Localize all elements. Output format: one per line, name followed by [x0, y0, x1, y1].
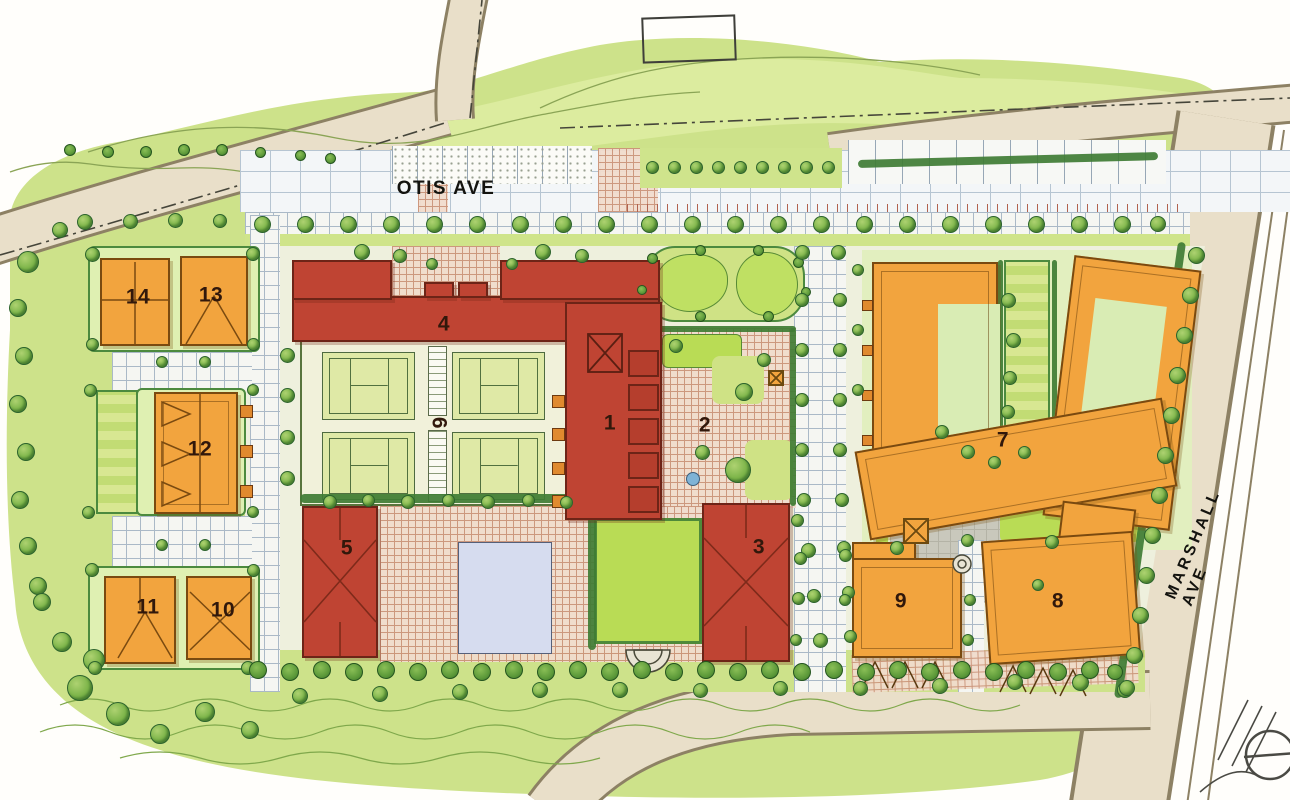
tree-icon	[935, 425, 949, 439]
tree-icon	[985, 216, 1002, 233]
balcony	[552, 428, 565, 441]
bush-icon	[761, 661, 779, 679]
tree-icon	[150, 724, 170, 744]
tree-icon	[77, 214, 93, 230]
tennis-court-3	[322, 432, 415, 500]
garden-lobe-east	[736, 252, 798, 316]
tree-icon	[86, 338, 99, 351]
tree-icon	[1182, 287, 1199, 304]
building-14-label: 14	[126, 287, 150, 308]
tree-icon	[247, 384, 259, 396]
tree-icon	[1001, 405, 1015, 419]
tree-icon	[393, 249, 407, 263]
tree-icon	[795, 343, 809, 357]
tree-icon	[669, 339, 683, 353]
building-10-label: 10	[211, 600, 235, 621]
spa-pool	[686, 472, 700, 486]
tree-icon	[813, 633, 828, 648]
tree-icon	[695, 445, 710, 460]
tree-icon	[641, 216, 658, 233]
tree-icon	[383, 216, 400, 233]
tree-icon	[734, 161, 747, 174]
tree-icon	[1126, 647, 1143, 664]
tree-icon	[247, 506, 259, 518]
tennis-court-1	[322, 352, 415, 420]
tree-icon	[833, 393, 847, 407]
tree-icon	[964, 594, 976, 606]
tree-icon	[85, 247, 100, 262]
bush-icon	[1107, 664, 1123, 680]
bush-icon	[345, 663, 363, 681]
legend-box	[641, 14, 737, 63]
bush-icon	[178, 144, 190, 156]
tree-icon	[1188, 247, 1205, 264]
balcony	[862, 300, 873, 311]
building-4-label: 4	[438, 314, 450, 335]
tree-icon	[9, 395, 27, 413]
garden-rows	[96, 390, 138, 514]
tree-icon	[693, 683, 708, 698]
tree-icon	[442, 494, 455, 507]
tree-icon	[684, 216, 701, 233]
bush-icon	[377, 661, 395, 679]
tree-icon	[853, 681, 868, 696]
tennis-court-4	[452, 432, 545, 500]
bush-icon	[665, 663, 683, 681]
bush-icon	[753, 245, 764, 256]
tree-icon	[247, 564, 260, 577]
unit-box	[628, 452, 659, 479]
tree-icon	[932, 678, 948, 694]
unit-box	[628, 418, 659, 445]
tree-icon	[19, 537, 37, 555]
bush-icon	[695, 311, 706, 322]
building-8-label: 8	[1052, 591, 1064, 612]
tree-icon	[506, 258, 518, 270]
tree-icon	[340, 216, 357, 233]
tennis-court-2	[452, 352, 545, 420]
tree-icon	[770, 216, 787, 233]
tree-icon	[1132, 607, 1149, 624]
tree-icon	[1071, 216, 1088, 233]
tree-icon	[1028, 216, 1045, 233]
tree-icon	[241, 721, 259, 739]
building-1-label: 1	[604, 413, 616, 434]
tree-icon	[560, 496, 573, 509]
bush-icon	[793, 663, 811, 681]
tree-icon	[452, 684, 468, 700]
bush-icon	[857, 663, 875, 681]
tree-icon	[362, 494, 375, 507]
tree-icon	[1151, 487, 1168, 504]
tree-icon	[852, 324, 864, 336]
bush-icon	[647, 253, 658, 264]
tree-icon	[52, 632, 72, 652]
tree-icon	[280, 348, 295, 363]
tree-icon	[469, 216, 486, 233]
tree-icon	[535, 244, 551, 260]
tree-icon	[1157, 447, 1174, 464]
tree-icon	[168, 213, 183, 228]
tree-icon	[106, 702, 130, 726]
hedge	[656, 326, 796, 332]
tree-icon	[778, 161, 791, 174]
bush-icon	[1017, 661, 1035, 679]
hedge	[790, 328, 796, 506]
building-5-label: 5	[341, 538, 353, 559]
swimming-pool	[458, 542, 552, 654]
tree-icon	[1144, 527, 1161, 544]
tree-icon	[942, 216, 959, 233]
tree-icon	[247, 338, 260, 351]
site-plan: 1 2 3 4 5 6 7 8 9 10 11 12 13 14 OTIS AV…	[0, 0, 1290, 800]
tree-icon	[1163, 407, 1180, 424]
tree-icon	[797, 493, 811, 507]
tree-icon	[962, 634, 974, 646]
tree-icon	[246, 247, 260, 261]
building-12-label: 12	[188, 439, 212, 460]
bush-icon	[763, 311, 774, 322]
south-road	[552, 700, 1150, 800]
tree-icon	[646, 161, 659, 174]
bush-icon	[249, 661, 267, 679]
bush-icon	[537, 663, 555, 681]
tree-icon	[1045, 535, 1059, 549]
tree-icon	[668, 161, 681, 174]
bench-north	[428, 346, 447, 416]
tree-icon	[199, 356, 211, 368]
tree-icon	[833, 443, 847, 457]
tree-icon	[15, 347, 33, 365]
tree-icon	[292, 688, 308, 704]
building-5	[302, 506, 378, 658]
tree-icon	[52, 222, 68, 238]
tree-icon	[690, 161, 703, 174]
unit-box	[628, 350, 659, 377]
tree-icon	[254, 216, 271, 233]
street-lawn-strip	[245, 234, 1190, 246]
tree-icon	[1176, 327, 1193, 344]
bush-icon	[889, 661, 907, 679]
tree-icon	[85, 563, 99, 577]
enclave-court-1	[112, 352, 252, 390]
tree-icon	[835, 493, 849, 507]
tree-icon	[856, 216, 873, 233]
balcony	[552, 395, 565, 408]
tree-icon	[807, 589, 821, 603]
tree-icon	[852, 264, 864, 276]
tree-icon	[598, 216, 615, 233]
tree-icon	[756, 161, 769, 174]
bush-icon	[921, 663, 939, 681]
tree-icon	[1018, 446, 1031, 459]
tree-icon	[988, 456, 1001, 469]
tree-icon	[213, 214, 227, 228]
tree-icon	[792, 592, 805, 605]
tree-icon	[1119, 680, 1135, 696]
tree-icon	[532, 682, 548, 698]
bush-icon	[216, 144, 228, 156]
tree-icon	[512, 216, 529, 233]
bush-icon	[64, 144, 76, 156]
bush-icon	[441, 661, 459, 679]
tree-icon	[280, 471, 295, 486]
bush-icon	[729, 663, 747, 681]
tree-icon	[17, 443, 35, 461]
promenade-walk	[794, 246, 846, 692]
central-lawn	[594, 518, 702, 644]
tree-icon	[795, 293, 809, 307]
building-3	[702, 503, 790, 662]
tree-icon	[372, 686, 388, 702]
tree-icon	[961, 445, 975, 459]
tree-icon	[773, 681, 788, 696]
bush-icon	[569, 661, 587, 679]
tree-icon	[1003, 371, 1017, 385]
tree-icon	[123, 214, 138, 229]
tree-icon	[612, 682, 628, 698]
tree-icon	[88, 661, 102, 675]
tree-icon	[790, 634, 802, 646]
tree-icon	[84, 384, 97, 397]
building-4-stub	[424, 282, 454, 298]
unit-box	[628, 486, 659, 513]
tree-icon	[33, 593, 51, 611]
enclave-court-2	[112, 516, 252, 566]
tree-icon	[831, 245, 846, 260]
tree-icon	[800, 161, 813, 174]
tree-icon	[575, 249, 589, 263]
tree-icon	[833, 343, 847, 357]
bush-icon	[985, 663, 1003, 681]
tree-icon	[794, 552, 807, 565]
bush-icon	[953, 661, 971, 679]
tree-icon	[890, 541, 904, 555]
bush-icon	[637, 285, 647, 295]
unit-box	[628, 384, 659, 411]
tree-icon	[833, 293, 847, 307]
courtyard-2-garden-2	[745, 440, 793, 500]
tree-icon	[757, 353, 771, 367]
tree-icon	[82, 506, 95, 519]
tree-icon	[791, 514, 804, 527]
balcony	[862, 345, 873, 356]
tree-icon	[195, 702, 215, 722]
tree-icon	[725, 457, 751, 483]
tree-icon	[899, 216, 916, 233]
building-11	[104, 576, 176, 664]
building-4-west-wing	[292, 260, 392, 300]
hedge	[588, 510, 596, 650]
tree-icon	[297, 216, 314, 233]
bush-icon	[695, 245, 706, 256]
tree-icon	[67, 675, 93, 701]
bush-icon	[473, 663, 491, 681]
tree-icon	[1169, 367, 1186, 384]
balcony	[240, 485, 253, 498]
bush-icon	[1049, 663, 1067, 681]
pavilion-icon	[768, 370, 784, 386]
tree-icon	[401, 495, 415, 509]
tree-icon	[1114, 216, 1131, 233]
tree-icon	[795, 245, 810, 260]
tree-icon	[156, 356, 168, 368]
tree-icon	[1150, 216, 1166, 232]
balcony	[552, 462, 565, 475]
bush-icon	[281, 663, 299, 681]
tree-icon	[280, 388, 295, 403]
bush-icon	[505, 661, 523, 679]
tree-icon	[735, 383, 753, 401]
tree-icon	[199, 539, 211, 551]
tree-icon	[822, 161, 835, 174]
tree-icon	[323, 495, 337, 509]
building-4-stub	[458, 282, 488, 298]
tree-icon	[712, 161, 725, 174]
tree-icon	[1138, 567, 1155, 584]
tree-icon	[426, 258, 438, 270]
balcony	[240, 405, 253, 418]
tree-icon	[839, 549, 852, 562]
tree-icon	[961, 534, 974, 547]
bush-icon	[409, 663, 427, 681]
bush-icon	[1081, 661, 1099, 679]
tree-icon	[813, 216, 830, 233]
tree-icon	[1001, 293, 1016, 308]
tree-icon	[156, 539, 168, 551]
building-4-east-wing	[500, 260, 660, 300]
bush-icon	[325, 153, 336, 164]
bench-south	[428, 430, 447, 502]
bush-icon	[102, 146, 114, 158]
bush-icon	[633, 661, 651, 679]
tree-icon	[522, 494, 535, 507]
tree-icon	[1006, 333, 1021, 348]
otis-ave-label: OTIS AVE	[397, 178, 496, 200]
balcony	[862, 435, 873, 446]
bush-icon	[601, 663, 619, 681]
tree-icon	[839, 594, 851, 606]
tree-icon	[844, 630, 857, 643]
tree-icon	[9, 299, 27, 317]
bush-icon	[825, 661, 843, 679]
tree-icon	[727, 216, 744, 233]
tree-icon	[17, 251, 39, 273]
bush-icon	[255, 147, 266, 158]
bush-icon	[295, 150, 306, 161]
bush-icon	[313, 661, 331, 679]
tree-icon	[481, 495, 495, 509]
balcony	[240, 445, 253, 458]
building-13-label: 13	[199, 285, 223, 306]
building-11-label: 11	[136, 597, 159, 618]
tree-icon	[11, 491, 29, 509]
building-7-label: 7	[997, 430, 1009, 451]
bush-icon	[697, 661, 715, 679]
tree-icon	[852, 384, 864, 396]
tree-icon	[795, 393, 809, 407]
tree-icon	[280, 430, 295, 445]
tree-icon	[555, 216, 572, 233]
pavilion-icon	[903, 518, 929, 544]
building-9-label: 9	[895, 591, 907, 612]
area-6-label: 6	[429, 417, 450, 429]
tree-icon	[795, 443, 809, 457]
tree-icon	[29, 577, 47, 595]
tree-icon	[426, 216, 443, 233]
tree-icon	[1032, 579, 1044, 591]
building-2-label: 2	[699, 415, 711, 436]
tree-icon	[354, 244, 370, 260]
building-3-label: 3	[753, 537, 765, 558]
bush-icon	[140, 146, 152, 158]
